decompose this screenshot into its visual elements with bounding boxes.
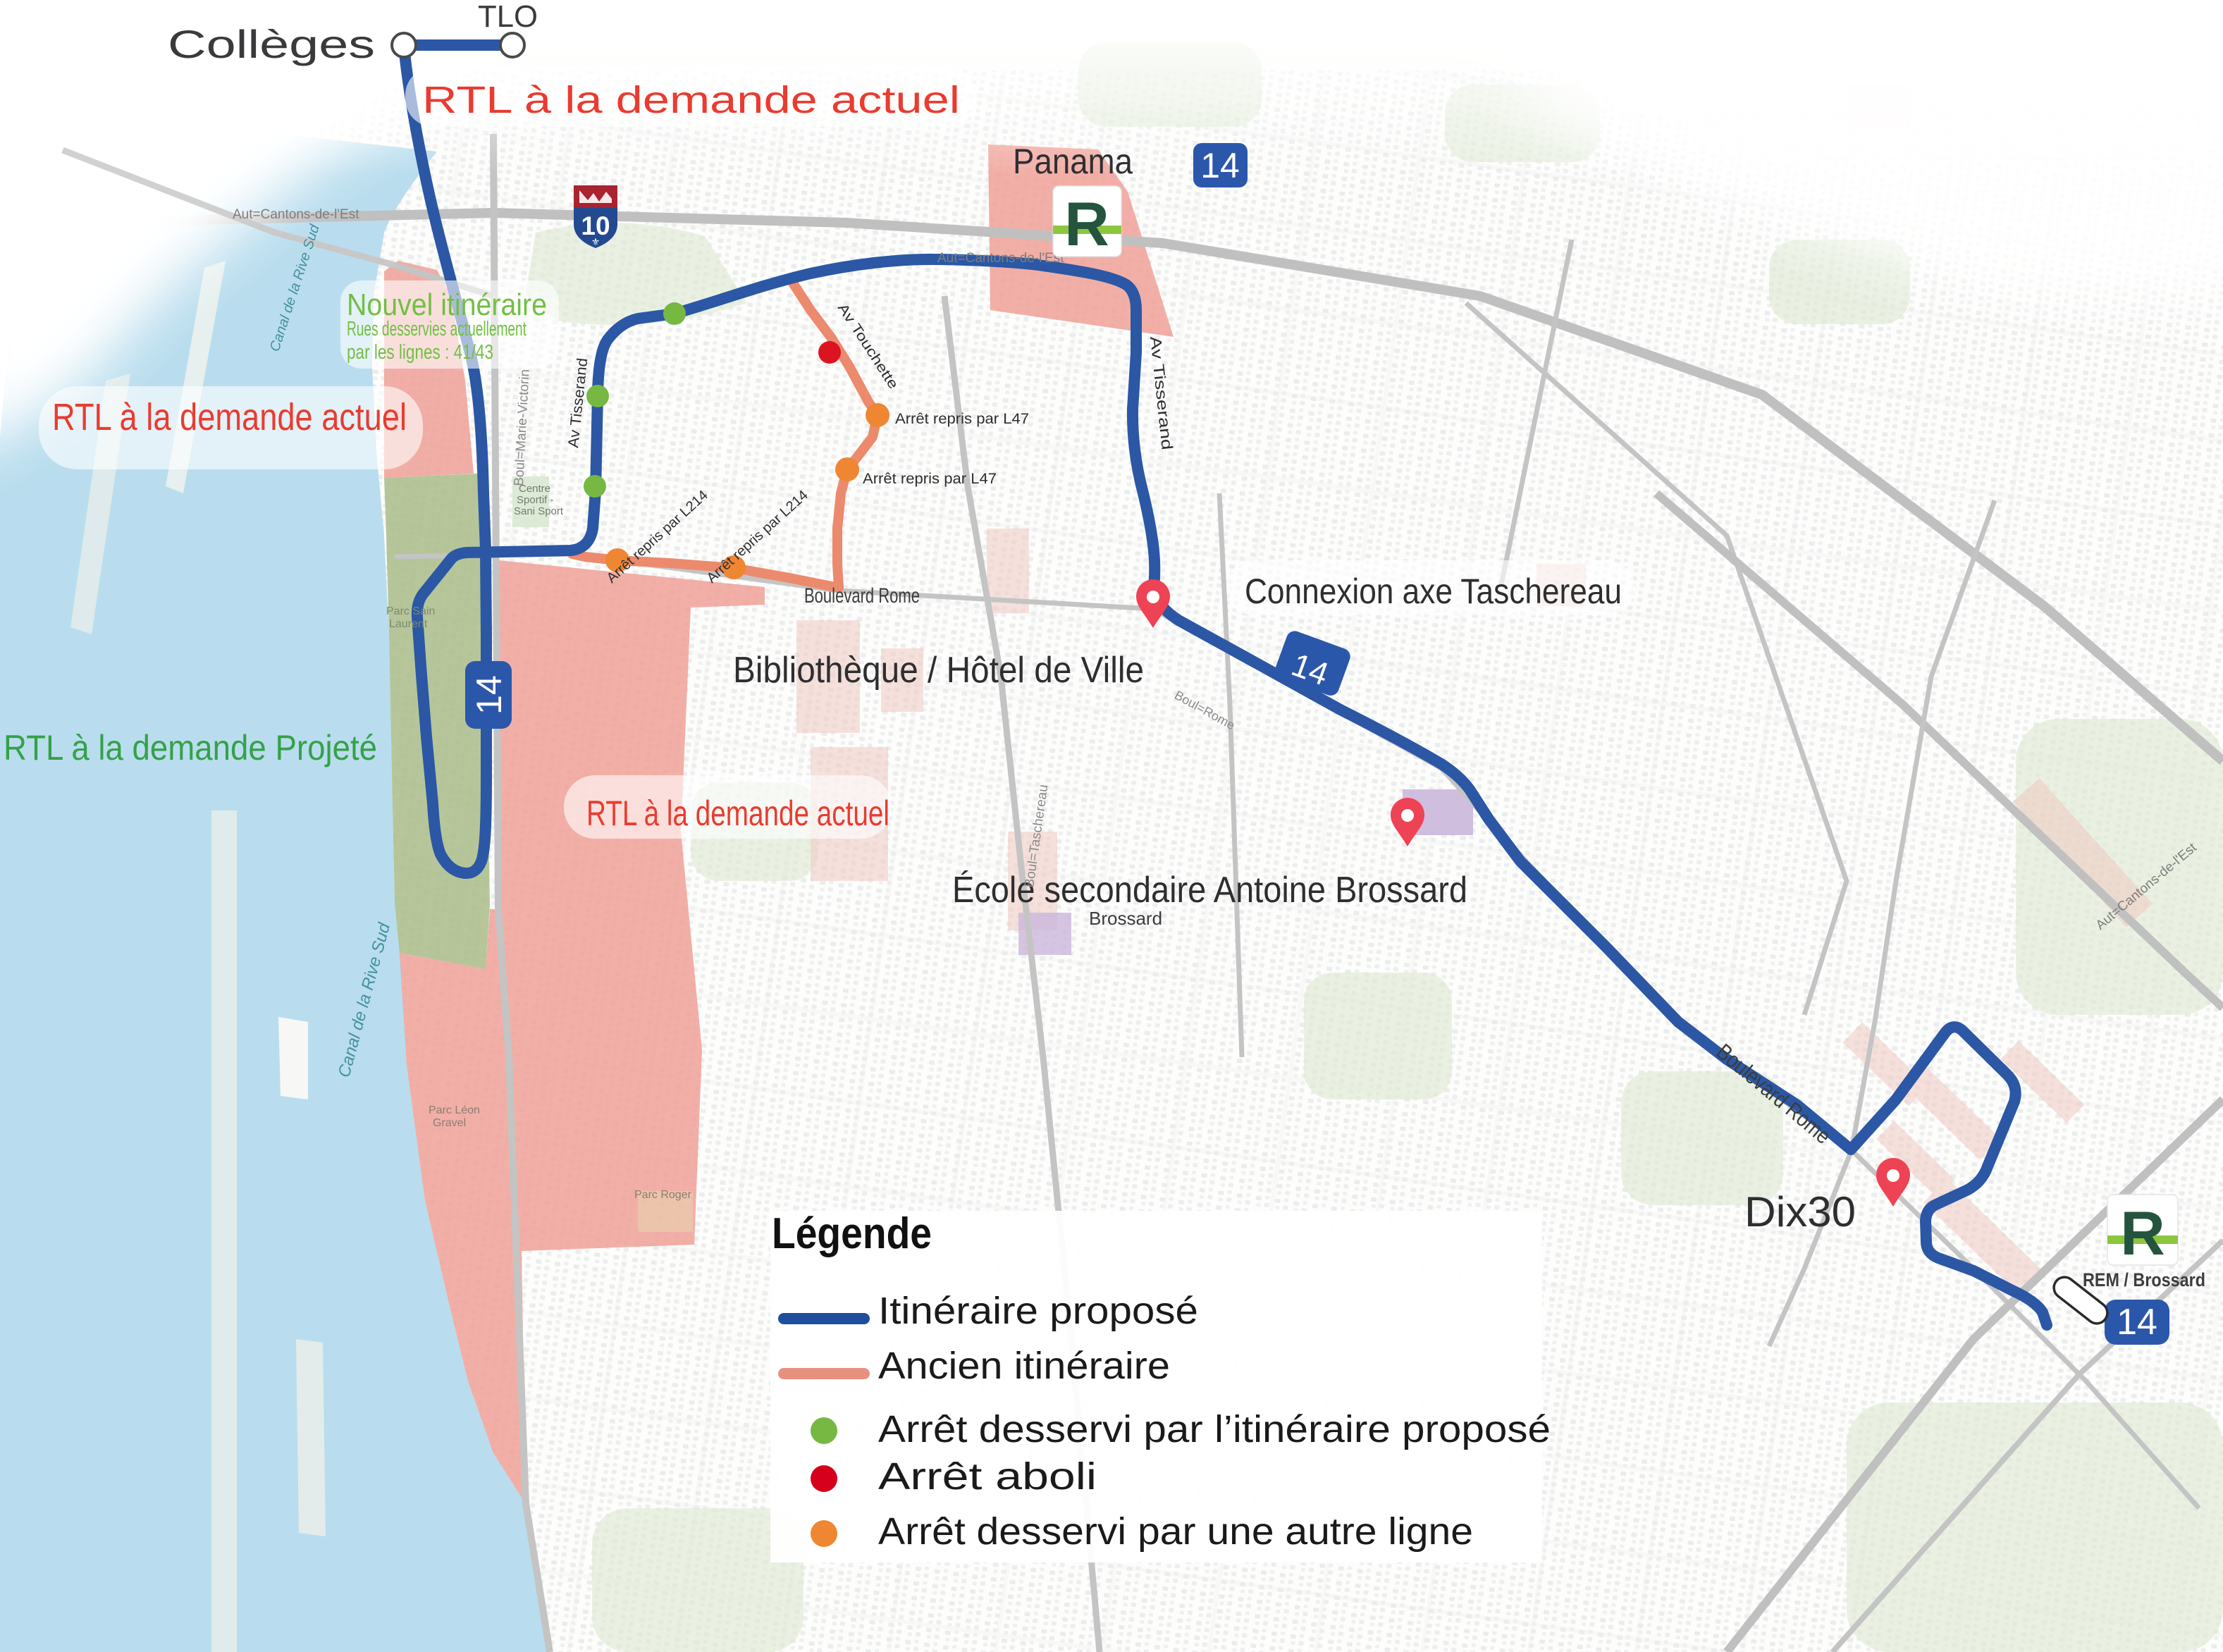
svg-text:Centre: Centre — [519, 483, 550, 495]
svg-text:14: 14 — [2117, 1302, 2157, 1343]
svg-text:Aut=Cantons-de-l'Est: Aut=Cantons-de-l'Est — [233, 207, 359, 222]
svg-text:Panama: Panama — [1013, 142, 1133, 181]
svg-text:Rues desservies actuellement: Rues desservies actuellement — [347, 318, 526, 340]
svg-text:Arrêt repris par L47: Arrêt repris par L47 — [863, 471, 997, 487]
svg-text:Boulevard Rome: Boulevard Rome — [804, 584, 920, 608]
svg-text:Parc Léon: Parc Léon — [429, 1104, 480, 1116]
svg-text:Laurent: Laurent — [389, 618, 428, 630]
svg-text:Bibliothèque / Hôtel de Ville: Bibliothèque / Hôtel de Ville — [733, 650, 1144, 691]
svg-text:Sani Sport: Sani Sport — [514, 505, 564, 517]
svg-text:R: R — [2120, 1198, 2165, 1268]
svg-text:Légende: Légende — [772, 1209, 932, 1258]
svg-text:par les lignes : 41/43: par les lignes : 41/43 — [347, 341, 493, 364]
svg-text:RTL à la demande actuel: RTL à la demande actuel — [586, 794, 889, 833]
svg-text:14: 14 — [469, 675, 509, 715]
svg-text:Ancien itinéraire: Ancien itinéraire — [878, 1345, 1170, 1387]
svg-text:Parc Sain: Parc Sain — [386, 605, 435, 617]
svg-text:REM / Brossard: REM / Brossard — [2083, 1269, 2205, 1290]
svg-text:RTL à la demande actuel: RTL à la demande actuel — [52, 396, 407, 438]
svg-text:Gravel: Gravel — [433, 1117, 466, 1129]
svg-text:Sportif -: Sportif - — [517, 494, 554, 506]
svg-text:RTL à la demande Projeté: RTL à la demande Projeté — [4, 728, 377, 768]
svg-text:⚜: ⚜ — [591, 236, 601, 247]
svg-text:14: 14 — [1200, 146, 1240, 185]
svg-text:Brossard: Brossard — [1089, 908, 1162, 929]
svg-text:Aut=Cantons-de-l'Est: Aut=Cantons-de-l'Est — [937, 251, 1064, 266]
svg-text:R: R — [1064, 189, 1109, 259]
svg-text:Arrêt desservi par l’itinérair: Arrêt desservi par l’itinéraire proposé — [878, 1408, 1551, 1450]
svg-text:RTL à la demande actuel: RTL à la demande actuel — [422, 79, 960, 121]
svg-text:Collèges: Collèges — [168, 22, 375, 66]
svg-text:Dix30: Dix30 — [1744, 1188, 1856, 1235]
svg-text:Nouvel itinéraire: Nouvel itinéraire — [347, 288, 547, 322]
svg-text:TLO: TLO — [478, 0, 538, 34]
svg-text:Arrêt aboli: Arrêt aboli — [878, 1455, 1097, 1498]
svg-text:Connexion axe Taschereau: Connexion axe Taschereau — [1245, 572, 1622, 611]
svg-text:Arrêt desservi par une autre l: Arrêt desservi par une autre ligne — [878, 1510, 1473, 1553]
svg-text:Arrêt repris par L47: Arrêt repris par L47 — [895, 411, 1029, 427]
svg-text:Itinéraire proposé: Itinéraire proposé — [878, 1290, 1198, 1332]
svg-text:Parc Roger: Parc Roger — [634, 1189, 692, 1201]
